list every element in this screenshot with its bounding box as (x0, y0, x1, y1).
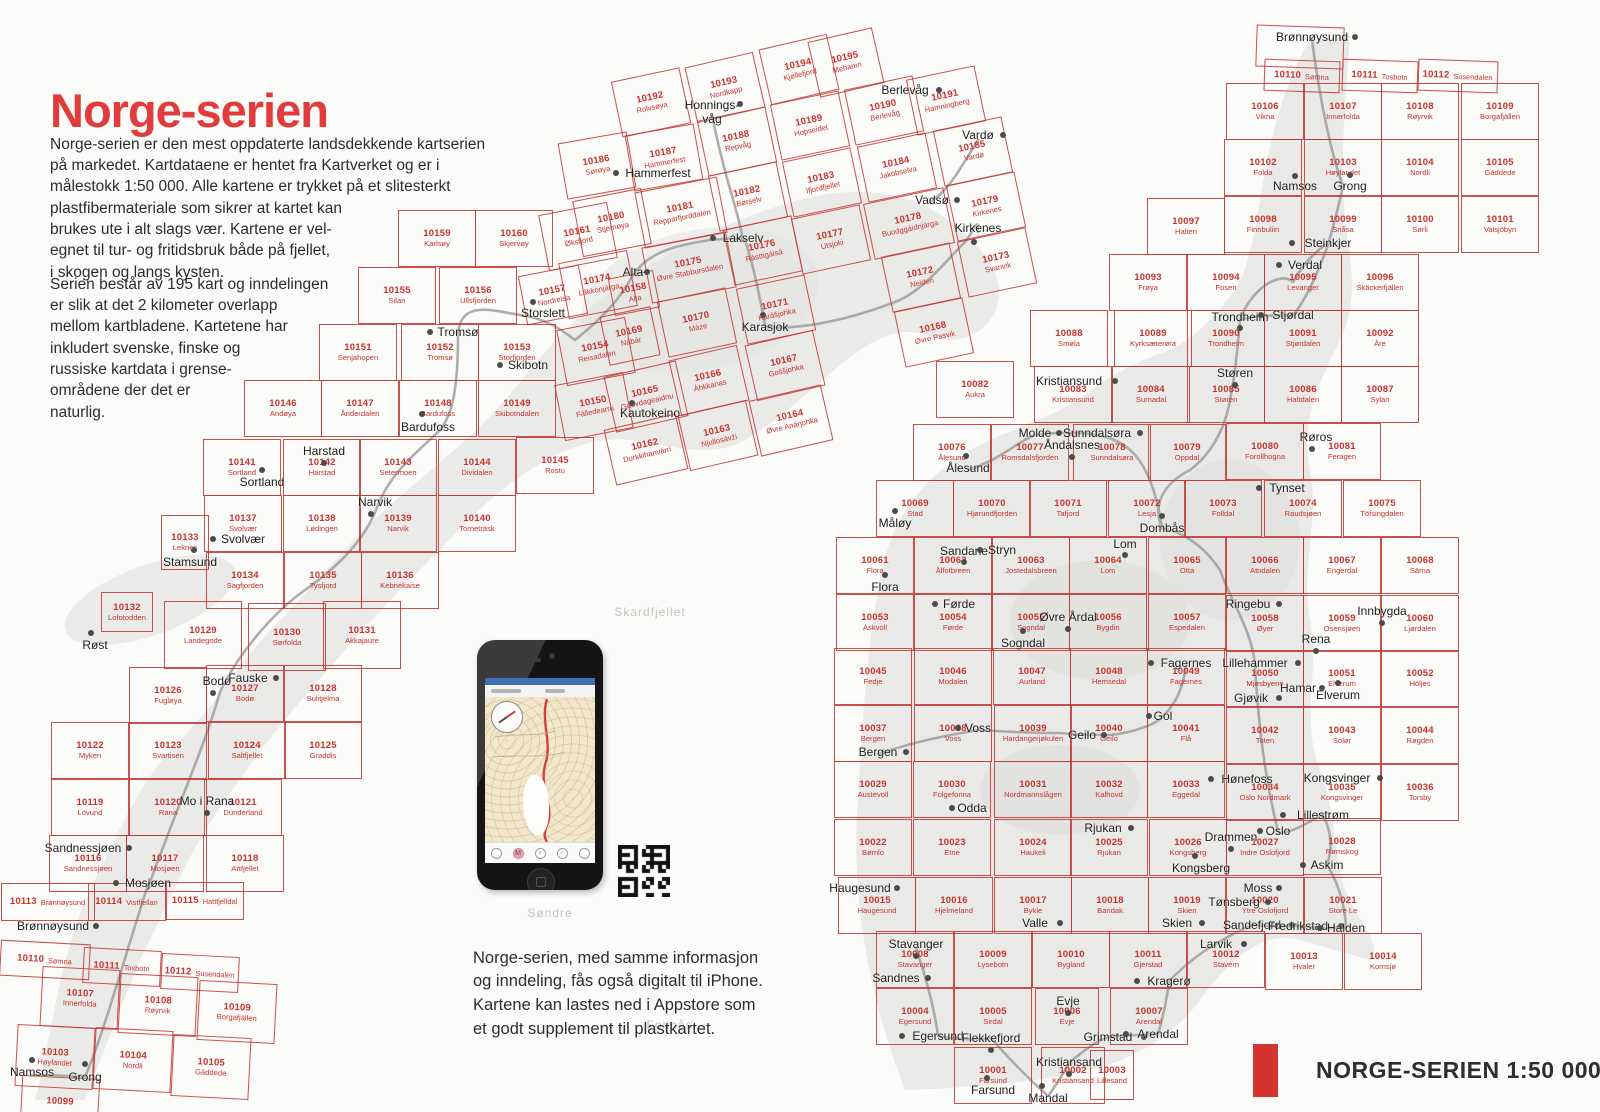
town-label: Måløy (879, 516, 912, 530)
map-sheet-10145: 10145Rostu (516, 437, 594, 494)
sheet-name: Bygland (1056, 960, 1085, 969)
sheet-name: Bandak (1096, 906, 1124, 915)
town-dot (613, 170, 619, 176)
map-sheet-10134: 10134Sagfjorden (206, 552, 284, 609)
home-button (527, 868, 555, 890)
sheet-name: Haugesund (857, 906, 898, 915)
sheet-number: 10123 (154, 741, 181, 751)
sheet-number: 10045 (859, 667, 886, 677)
sheet-name: Røgden (1405, 736, 1434, 745)
town-dot (894, 885, 900, 891)
iphone-screen: M + ⌕ (485, 678, 595, 863)
sheet-number: 10133 (171, 533, 198, 543)
sheet-number: 10103 (1329, 158, 1356, 168)
town-dot (988, 1047, 994, 1053)
sheet-name: Kristiansand (1051, 1076, 1095, 1085)
sheet-name: Førde (942, 623, 964, 632)
town-dot (88, 630, 94, 636)
sheet-name: Hardangerjøkulen (1002, 734, 1064, 743)
map-sheet-10093: 10093Frøya (1109, 254, 1187, 311)
town-label: Namsos (10, 1065, 54, 1079)
sheet-number: 10033 (1172, 780, 1199, 790)
town-label: Førde (943, 597, 975, 611)
sheet-number: 10134 (231, 571, 258, 581)
qr-code (618, 845, 670, 897)
sheet-name: Haukeli (1019, 848, 1046, 857)
town-dot (1148, 660, 1154, 666)
town-label: Gjøvik (1234, 691, 1268, 705)
home-button-square (536, 877, 546, 887)
sheet-number: 10056 (1094, 613, 1121, 623)
sheet-name: Folda (1253, 168, 1274, 177)
sheet-name: Store Le (1328, 906, 1359, 915)
town-label: Fauske (228, 671, 267, 685)
map-sheet-10065: 10065Otta (1148, 537, 1226, 594)
sheet-number: 10104 (1406, 158, 1433, 168)
sheet-number: 10051 (1328, 669, 1355, 679)
sheet-number: 10129 (189, 626, 216, 636)
map-sheet-10024: 10024Haukeli (994, 819, 1072, 876)
map-sheet-10119: 10119Lovund (51, 779, 129, 836)
map-sheet-10088: 10088Smøla (1030, 310, 1108, 367)
town-dot (273, 675, 279, 681)
town-label: Karasjok (742, 320, 789, 334)
town-label: Sandnessjøen (45, 841, 122, 855)
town-label: Alta (623, 265, 644, 279)
sheet-name: Innerfolda (62, 998, 98, 1009)
town-dot (126, 845, 132, 851)
town-label: Larvik (1200, 937, 1232, 951)
sheet-name: Solør (1332, 736, 1352, 745)
sheet-number: 10010 (1057, 950, 1084, 960)
sheet-name: Skien (1177, 906, 1198, 915)
map-sheet-10086: 10086Haltdalen (1264, 366, 1342, 423)
map-sheet-10070: 10070Hjørundfjorden (953, 480, 1031, 537)
map-sheet-10032: 10032Kalhovd (1070, 761, 1148, 818)
sheet-number: 10030 (938, 780, 965, 790)
sheet-number: 10092 (1366, 329, 1393, 339)
map-sheet-10046: 10046Modalen (914, 648, 992, 705)
sheet-number: 10031 (1019, 780, 1046, 790)
town-dot (961, 559, 967, 565)
map-sheet-10126: 10126Fugløya (129, 667, 207, 724)
town-dot (932, 601, 938, 607)
town-label: Fagernes (1161, 656, 1212, 670)
town-label: Skien (1162, 916, 1192, 930)
sheet-name: Røyrvik (144, 1005, 172, 1015)
sheet-number: 10095 (1289, 273, 1316, 283)
sheet-number: 10007 (1135, 1007, 1162, 1017)
logo-red-block (1253, 1044, 1278, 1097)
town-dot (321, 460, 327, 466)
sheet-name: Aurland (1018, 677, 1046, 686)
sheet-number: 10029 (859, 780, 886, 790)
sheet-name: Fedje (863, 677, 884, 686)
sheet-number: 10001 (979, 1066, 1006, 1076)
map-sheet-10100: 10100Sørli (1381, 196, 1459, 253)
map-sheet-10132: 10132Lofotodden (101, 592, 153, 632)
sheet-number: 10137 (229, 514, 256, 524)
sheet-name: Tafjord (1056, 509, 1081, 518)
town-label: Steinkjer (1305, 236, 1352, 250)
sheet-name: Frøya (1137, 283, 1159, 292)
town-dot (1101, 732, 1107, 738)
sheet-number: 10124 (233, 741, 260, 751)
sheet-name: Kongsberg (1169, 848, 1208, 857)
sheet-name: Aukra (964, 390, 986, 399)
town-label: Innbygda (1357, 604, 1406, 618)
sheet-number: 10065 (1173, 556, 1200, 566)
sheet-number: 10026 (1174, 838, 1201, 848)
sheet-number: 10014 (1369, 952, 1396, 962)
sheet-number: 10098 (1249, 215, 1276, 225)
sheet-name: Stjørdalen (1285, 339, 1322, 348)
map-sheet-10043: 10043Solør (1303, 707, 1381, 764)
sheet-name: Høylandet (1325, 168, 1362, 177)
town-dot (82, 1061, 88, 1067)
town-label: Røst (82, 638, 107, 652)
town-dot (1112, 378, 1118, 384)
map-sheet-10101: 10101Valsjöbyn (1461, 196, 1539, 253)
intro-paragraph-1: Norge-serien er den mest oppdaterte land… (50, 134, 530, 284)
sheet-number: 10119 (77, 798, 104, 808)
town-label: Haugesund (829, 881, 890, 895)
app-bar-text-placeholder (491, 689, 521, 693)
sheet-number: 10038 (939, 724, 966, 734)
sheet-number: 10017 (1019, 896, 1046, 906)
town-label: Stjørdal (1272, 308, 1313, 322)
brochure-page: Norge-serien Norge-serien er den mest op… (0, 0, 1600, 1112)
town-dot (913, 953, 919, 959)
sheet-name: Rostu (544, 466, 566, 475)
map-sheet-10123: 10123Svartisen (129, 722, 207, 779)
logo-text: NORGE-SERIEN 1:50 000 (1316, 1057, 1600, 1084)
sheet-name: Engerdal (1326, 566, 1358, 575)
town-dot (1258, 312, 1264, 318)
sheet-name: Flå (1180, 734, 1193, 743)
sheet-number: 10013 (1290, 952, 1317, 962)
town-label: Grong (1333, 179, 1366, 193)
sheet-name: Borgafjällen (215, 1011, 258, 1022)
map-sheet-10106: 10106Vikna (1226, 83, 1304, 140)
town-dot (1065, 626, 1071, 632)
sheet-name: Surnadal (1135, 395, 1167, 404)
sheet-number: 10088 (1055, 329, 1082, 339)
sheet-name: Fagernes (1169, 677, 1203, 686)
town-label: Mo i Rana (180, 794, 235, 808)
town-label: Berlevåg (881, 83, 928, 97)
town-label: Namsos (1273, 179, 1317, 193)
sheet-number: 10099 (1329, 215, 1356, 225)
map-sheet-10079: 10079Oppdal (1148, 424, 1226, 481)
town-label: Flora (871, 580, 898, 594)
sheet-name: Ljørdalen (1403, 624, 1437, 633)
sheet-number: 10019 (1173, 896, 1200, 906)
town-label: Mosjøen (125, 876, 171, 890)
sheet-number: 10080 (1251, 442, 1278, 452)
sheet-name: Dividalen (460, 468, 493, 477)
phone-earpiece (515, 658, 541, 662)
town-label: Støren (1217, 366, 1253, 380)
sheet-number: 10040 (1095, 724, 1122, 734)
town-dot (1295, 660, 1301, 666)
sheet-name: Levanger (1286, 283, 1320, 292)
sheet-number: 10109 (1486, 102, 1513, 112)
sheet-name: Hemsedal (1091, 677, 1127, 686)
town-label: Ringebu (1226, 597, 1271, 611)
town-label: Farsund (971, 1083, 1015, 1097)
background-map-label: Skardfjellet (614, 605, 685, 619)
map-sheet-10128: 10128Sulitjelma (284, 665, 362, 722)
sheet-name: Borgafjällen (1479, 112, 1521, 121)
sheet-name: Oslo Nordmark (1238, 793, 1291, 802)
sheet-number: 10114 (95, 897, 122, 907)
map-sheet-10097: 10097Halten (1147, 198, 1225, 255)
sheet-number: 10106 (1251, 102, 1278, 112)
town-dot (1377, 775, 1383, 781)
sheet-number: 10113 (10, 897, 37, 907)
map-sheet-10029: 10029Austevoll (834, 761, 912, 818)
map-sheet-10138: 10138Lødingen (283, 495, 361, 552)
town-dot (737, 101, 743, 107)
map-sheet-10140: 10140Torneträsk (438, 495, 516, 552)
sheet-name: Raudsjøen (1284, 509, 1323, 518)
sheet-number: 10077 (1016, 443, 1043, 453)
town-label: Rena (1302, 632, 1331, 646)
sheet-number: 10052 (1406, 669, 1433, 679)
sheet-name: Etne (943, 848, 961, 857)
town-label: Mandal (1028, 1091, 1067, 1105)
sheet-name: Bodø (235, 694, 255, 703)
sheet-name: Arendal (1135, 1017, 1163, 1026)
town-dot (1292, 173, 1298, 179)
sheet-number: 10011 (1135, 950, 1162, 960)
town-dot (1020, 628, 1026, 634)
sheet-number: 10057 (1173, 613, 1200, 623)
town-dot (1347, 172, 1353, 178)
sheet-number: 10070 (978, 499, 1005, 509)
sheet-name: Narvik (386, 524, 410, 533)
page-title: Norge-serien (50, 83, 328, 138)
sheet-name: Valsjöbyn (1483, 225, 1517, 234)
sheet-name: Stavanger (897, 960, 934, 969)
town-label: Egersund (912, 1029, 963, 1043)
town-label: Sogndal (1001, 636, 1045, 650)
town-dot (1276, 885, 1282, 891)
sheet-number: 10076 (938, 443, 965, 453)
town-dot (882, 572, 888, 578)
sheet-number: 10143 (384, 458, 411, 468)
sheet-number: 10108 (1406, 102, 1433, 112)
sheet-name: Nordmannslågen (1003, 790, 1063, 799)
sheet-number: 10107 (1329, 102, 1356, 112)
sheet-number: 10086 (1289, 385, 1316, 395)
sheet-number: 10097 (1172, 217, 1199, 227)
sheet-name: Sunndalsøra (1089, 453, 1134, 462)
town-dot (644, 269, 650, 275)
sheet-name: Folldal (1211, 509, 1235, 518)
town-label: Halden (1327, 921, 1365, 935)
sheet-number: 10087 (1366, 385, 1393, 395)
sheet-name: Skäckerfjällen (1355, 283, 1404, 292)
sheet-name: Lom (1100, 566, 1117, 575)
town-dot (1122, 552, 1128, 558)
map-sheet-10014: 10014Kornsjø (1344, 933, 1422, 990)
map-sheet-10018: 10018Bandak (1071, 877, 1149, 934)
town-dot (955, 725, 961, 731)
sheet-name: Vikna (1255, 112, 1276, 121)
map-sheet-10104: 10104Nordli (92, 1027, 173, 1093)
map-sheet-10057: 10057Espedalen (1148, 594, 1226, 651)
sheet-name: Åre (1373, 339, 1387, 348)
map-sheet-10143: 10143Setermoen (359, 439, 437, 496)
town-dot (629, 400, 635, 406)
sheet-name: Susendalen (1452, 71, 1493, 81)
sheet-number: 10075 (1368, 499, 1395, 509)
sheet-name: Lillesand (1096, 1076, 1128, 1085)
map-sheet-10104: 10104Nordli (1381, 139, 1459, 196)
town-label: Sortland (240, 475, 285, 489)
town-dot (1208, 776, 1214, 782)
background-map-label: Søndre (527, 906, 572, 920)
sheet-number: 10111 (1351, 70, 1378, 81)
sheet-number: 10074 (1289, 499, 1316, 509)
sheet-name: Lesja (1137, 509, 1157, 518)
town-dot (1313, 648, 1319, 654)
app-bar-text-placeholder (545, 689, 565, 693)
map-sheet-10108: 10108Røyrvik (117, 973, 198, 1037)
town-dot (1128, 825, 1134, 831)
map-sheet-10130: 10130Sørfolda (248, 603, 326, 671)
sheet-number: 10021 (1329, 896, 1356, 906)
sheet-name: Sulitjelma (306, 694, 341, 703)
sheet-number: 10071 (1054, 499, 1081, 509)
sheet-name: Innerfolda (1325, 112, 1361, 121)
town-label: Lom (1113, 537, 1136, 551)
sheet-name: Evje (1059, 1017, 1076, 1026)
town-dot (204, 810, 210, 816)
sheet-name: Toten (1255, 736, 1276, 745)
town-dot (1289, 240, 1295, 246)
town-label: Lakselv (723, 231, 764, 245)
sheet-number: 10105 (1486, 158, 1513, 168)
sheet-name: Lødingen (305, 524, 339, 533)
town-dot (1300, 862, 1306, 868)
sheet-name: Oppdal (1174, 453, 1201, 462)
iphone-graphic: M + ⌕ (477, 640, 603, 890)
sheet-name: Tosbotn (122, 963, 150, 973)
town-dot (1379, 620, 1385, 626)
sheet-number: 10037 (859, 724, 886, 734)
sheet-name: Gjerstad (1133, 960, 1164, 969)
sheet-name: Torneträsk (458, 524, 495, 533)
sheet-name: Romsdalsfjorden (1001, 453, 1060, 462)
sheet-number: 10072 (1133, 499, 1160, 509)
town-label: Vadsø (915, 193, 949, 207)
sheet-name: Sømna (1304, 72, 1330, 82)
sheet-number: 10043 (1328, 726, 1355, 736)
town-dot (1000, 132, 1006, 138)
map-sheet-10087: 10087Sylan (1341, 366, 1419, 423)
sheet-name: Hjelmeland (934, 906, 974, 915)
town-label: Tønsberg (1208, 895, 1259, 909)
town-label: Hammerfest (625, 166, 690, 180)
sheet-name: Snåsa (1331, 225, 1355, 234)
sheet-number: 10041 (1172, 724, 1199, 734)
town-label: Lillestrøm (1297, 808, 1349, 822)
town-label: Voss (965, 721, 991, 735)
sheet-name: Setermoen (378, 468, 417, 477)
town-label: Brønnøysund (1276, 30, 1348, 44)
map-sheet-10129: 10129Landegode (164, 601, 242, 669)
town-label: Elverum (1316, 688, 1360, 702)
sheet-number: 10016 (940, 896, 967, 906)
map-sheet-10047: 10047Aurland (993, 648, 1071, 705)
sheet-name: Torsby (1408, 793, 1432, 802)
map-sheet-10135: 10135Tysfjord (284, 552, 362, 609)
sheet-number: 10118 (232, 854, 259, 864)
sheet-number: 10140 (463, 514, 490, 524)
map-sheet-10053: 10053Askvoll (836, 594, 914, 651)
sheet-number: 10022 (859, 838, 886, 848)
town-dot (1335, 680, 1341, 686)
sheet-number: 10046 (939, 667, 966, 677)
map-sheet-10023: 10023Etne (913, 819, 991, 876)
sheet-number: 10110 (1274, 70, 1301, 81)
town-dot (954, 197, 960, 203)
sheet-name: Voss (944, 734, 962, 743)
sheet-number: 10063 (1017, 556, 1044, 566)
town-dot (1039, 1083, 1045, 1089)
map-sheet-10125: 10125Graddis (284, 722, 362, 779)
sheet-number: 10004 (901, 1007, 928, 1017)
town-dot (93, 923, 99, 929)
sheet-name: Austevoll (857, 790, 890, 799)
town-label: Svolvær (221, 532, 265, 546)
sheet-number: 10009 (979, 950, 1006, 960)
town-dot (1057, 920, 1063, 926)
sheet-number: 10122 (76, 741, 103, 751)
town-dot (971, 239, 977, 245)
phone-map-view (485, 697, 595, 842)
map-sheet-10084: 10084Surnadal (1112, 366, 1190, 423)
sheet-name: Fugløya (153, 696, 182, 705)
sheet-number: 10101 (1486, 215, 1513, 225)
map-sheet-10036: 10036Torsby (1381, 764, 1459, 821)
sheet-number: 10120 (154, 798, 181, 808)
layers-icon (491, 848, 502, 859)
map-sheet-10071: 10071Tafjord (1029, 480, 1107, 537)
sheet-number: 10039 (1019, 724, 1046, 734)
sheet-name: Sylan (1370, 395, 1391, 404)
sheet-number: 10015 (863, 896, 890, 906)
sheet-name: Dunderland (222, 808, 263, 817)
sheet-number: 10128 (309, 684, 336, 694)
sheet-name: Bykle (1023, 906, 1044, 915)
sheet-number: 10141 (228, 458, 255, 468)
map-sheet-10048: 10048Hemsedal (1070, 648, 1148, 705)
town-label: Drammen (1205, 830, 1258, 844)
town-label: Stryn (988, 543, 1016, 557)
sheet-number: 10079 (1173, 443, 1200, 453)
town-label: Narvik (358, 495, 392, 509)
map-sheet-10096: 10096Skäckerfjällen (1341, 254, 1419, 311)
sheet-number: 10024 (1019, 838, 1046, 848)
sheet-name: Bygdin (1095, 623, 1120, 632)
sheet-number: 10090 (1212, 329, 1239, 339)
town-dot (1257, 828, 1263, 834)
sheet-name: Nordli (122, 1060, 144, 1070)
